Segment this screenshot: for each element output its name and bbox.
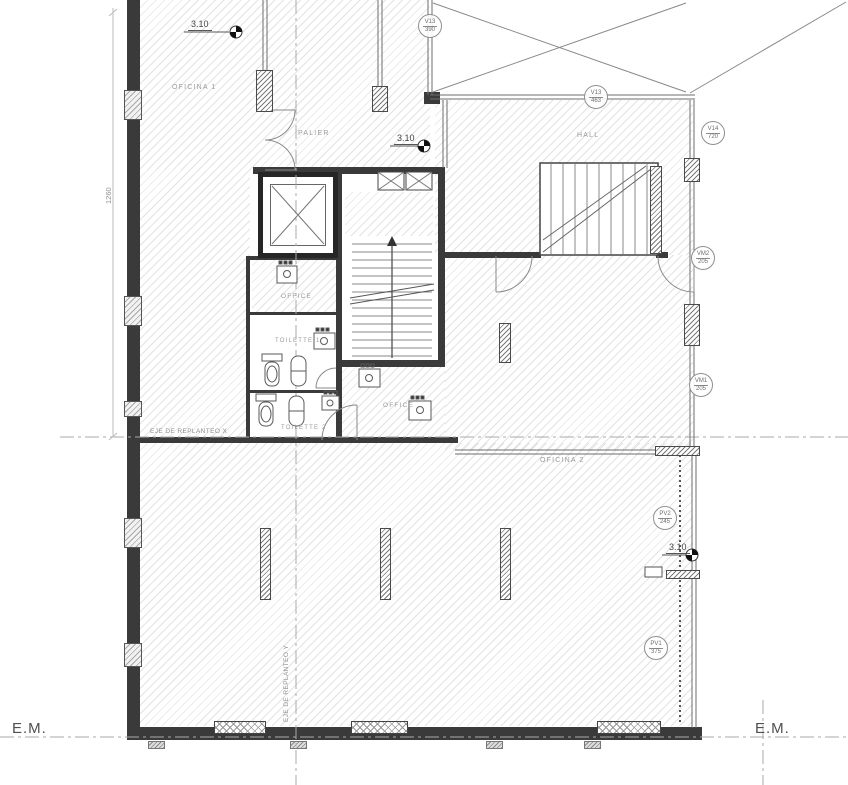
em-label-right: E.M.	[755, 720, 790, 737]
left-wall-window-3	[124, 401, 142, 417]
window-tag-v13b: V13 463	[584, 85, 608, 109]
room-label-office: OFFICE	[281, 293, 312, 300]
level-label-1: 3.10	[188, 19, 212, 31]
window-tag-v13a: V13 390	[418, 14, 442, 38]
pier-oficina1	[372, 86, 388, 112]
toilette2-fixtures	[256, 394, 304, 426]
column-mid	[499, 323, 511, 363]
pier-oficina2-corner	[655, 446, 700, 456]
right-wall-window	[645, 567, 662, 577]
dim-1260: 1260	[104, 187, 113, 204]
bottom-wall-window-1	[214, 721, 266, 734]
room-label-office2: OFFICE	[383, 402, 414, 409]
room-label-palier: PALIER	[298, 130, 330, 137]
tag-number: 720	[706, 133, 720, 141]
tag-code: PV2	[659, 511, 670, 518]
window-tag-vm2: VM2 205	[691, 246, 715, 270]
pier-stair-side	[650, 166, 662, 254]
room-label-toilette1: TOILETTE 1	[275, 338, 321, 344]
left-wall-window-5	[124, 643, 142, 667]
tag-code: VM2	[697, 251, 709, 258]
column-oficina2-1	[260, 528, 271, 600]
room-label-oficina2: OFICINA 2	[540, 457, 585, 464]
elevator-cross	[272, 186, 324, 244]
axis-y-label: EJE DE REPLANTEO Y	[283, 645, 290, 722]
floor-plan-sheet: OFICINA 1 PALIER HALL OFFICE TOILETTE 1 …	[0, 0, 848, 785]
pier-right-lower	[666, 570, 700, 579]
tag-number: 463	[589, 97, 603, 105]
tag-number: 390	[423, 26, 437, 34]
pier-right-upper	[684, 158, 700, 182]
tag-code: VM1	[695, 378, 707, 385]
column-oficina2-3	[500, 528, 511, 600]
left-wall-window-1	[124, 90, 142, 120]
em-label-left: E.M.	[12, 720, 47, 737]
level-label-3: 3.10	[666, 542, 690, 554]
room-label-hall: HALL	[577, 132, 599, 139]
tag-number: 205	[694, 385, 708, 393]
room-label-oficina1: OFICINA 1	[172, 84, 217, 91]
bottom-wall-window-3	[597, 721, 661, 734]
thin-walls	[263, 0, 700, 728]
tag-number: 245	[658, 518, 672, 526]
tag-number: 375	[649, 648, 663, 656]
column-oficina2-2	[380, 528, 391, 600]
axis-x-label: EJE DE REPLANTEO X	[150, 428, 227, 435]
pier-right-mid	[684, 304, 700, 346]
window-tag-pv1: PV1 375	[644, 636, 668, 660]
pier-palier-door	[256, 70, 273, 112]
stair-core	[350, 236, 434, 358]
dimension-line-left	[109, 8, 117, 440]
window-tag-pv2: PV2 245	[653, 506, 677, 530]
void-cross	[433, 2, 846, 93]
room-label-toilette2: TOILETTE 2	[281, 425, 327, 431]
window-tag-vm1: VM1 205	[689, 373, 713, 397]
window-tag-v14: V14 720	[701, 121, 725, 145]
left-wall-window-2	[124, 296, 142, 326]
bottom-wall-window-2	[351, 721, 408, 734]
toilette1-fixtures	[262, 354, 306, 386]
tag-code: PV1	[650, 641, 661, 648]
tag-number: 205	[696, 258, 710, 266]
vent-shafts	[378, 172, 432, 190]
tag-code: V14	[708, 126, 719, 133]
level-label-2: 3.10	[394, 133, 418, 145]
tag-code: V13	[425, 19, 436, 26]
tag-code: V13	[591, 90, 602, 97]
stair-hall	[540, 163, 658, 255]
left-wall-window-4	[124, 518, 142, 548]
